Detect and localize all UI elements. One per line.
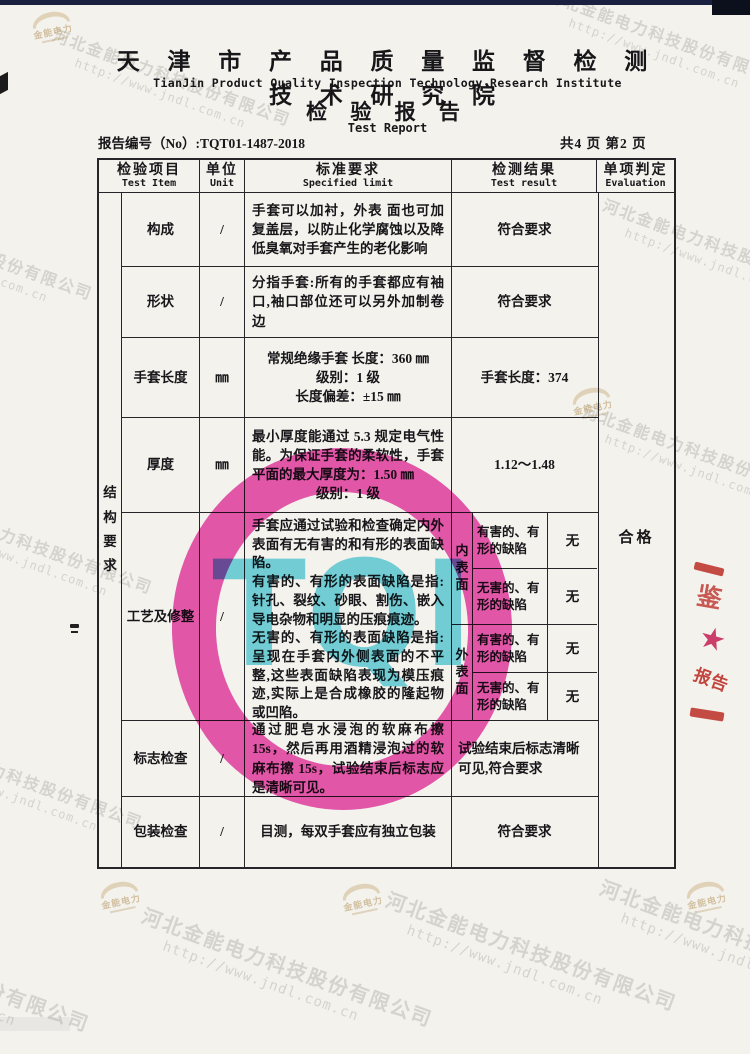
tqi-stamp-letters: TQI [207, 542, 480, 688]
group-label: 结构要求 [103, 481, 118, 578]
report-number: 报告编号（No）:TQT01-1487-2018 [98, 132, 305, 152]
result-cell: 符合要求 [452, 267, 597, 337]
item-cell: 标志检查 [122, 721, 200, 796]
result-cell: 符合要求 [452, 193, 597, 266]
spec-line: 长度偏差：±15 ㎜ [252, 387, 444, 406]
header-evaluation-en: Evaluation [605, 178, 665, 189]
spec-text: 分指手套:所有的手套都应有袖口,袖口部位还可以另外加制卷边 [252, 273, 444, 330]
item-cell: 构成 [122, 193, 200, 266]
group-column: 结构要求 [99, 193, 122, 867]
defect-value: 无 [548, 625, 597, 672]
spec-text: 手套可以加衬，外表 面也可加复盖层，以防止化学腐蚀以及降低臭氧对手套产生的老化影… [252, 201, 444, 258]
spec-cell: 手套可以加衬，外表 面也可加复盖层，以防止化学腐蚀以及降低臭氧对手套产生的老化影… [245, 193, 452, 266]
edge-seal-bar [693, 561, 724, 576]
header-test-item-en: Test Item [122, 178, 176, 189]
header-unit-en: Unit [210, 178, 234, 189]
header-test-result-cn: 检测结果 [492, 163, 556, 178]
evaluation-column: 合格 [599, 193, 674, 867]
item-cell: 包装检查 [122, 797, 200, 867]
watermark: 河北金能电力科技股份有限公司http://www.jndl.com.cn [0, 905, 94, 1054]
jinneng-logo: 金能电力 [337, 880, 386, 918]
header-test-result-en: Test result [491, 178, 557, 189]
header-unit-cn: 单位 [206, 163, 238, 178]
defect-value: 无 [548, 513, 597, 568]
spec-cell: 分指手套:所有的手套都应有袖口,袖口部位还可以另外加制卷边 [245, 267, 452, 337]
spec-text: 目测，每双手套应有独立包装 [252, 822, 444, 841]
spec-cell: 常规绝缘手套 长度：360 ㎜ 级别：1 级 长度偏差：±15 ㎜ [245, 338, 452, 417]
edge-seal-text: 报告 [691, 661, 733, 697]
item-cell: 形状 [122, 267, 200, 337]
header-evaluation-cn: 单项判定 [604, 163, 668, 178]
result-cell: 符合要求 [452, 797, 597, 867]
table-row: 形状 / 分指手套:所有的手套都应有袖口,袖口部位还可以另外加制卷边 符合要求 [122, 267, 598, 338]
edge-seal-character: 鉴 [694, 576, 725, 616]
institute-name-en: TianJin Product Quality Inspection Techn… [95, 76, 680, 90]
evaluation-value: 合格 [599, 526, 674, 547]
item-cell: 厚度 [122, 418, 200, 512]
unit-cell: / [200, 193, 245, 266]
unit-cell: / [200, 797, 245, 867]
jinneng-logo: 金能电力 [681, 878, 730, 916]
unit-cell: ㎜ [200, 338, 245, 417]
header-specified-limit-en: Specified limit [303, 178, 393, 189]
scan-speck-artifact [70, 624, 79, 628]
spec-line: 级别：1 级 [252, 368, 444, 387]
edge-seal-bar [690, 707, 725, 721]
defect-value: 无 [548, 673, 597, 720]
header-specified-limit-cn: 标准要求 [316, 163, 380, 178]
header-test-item: 检验项目 Test Item [99, 160, 200, 192]
header-test-item-cn: 检验项目 [117, 163, 181, 178]
scan-corner-mark [712, 0, 750, 15]
item-cell: 手套长度 [122, 338, 200, 417]
defect-value: 无 [548, 569, 597, 624]
page-info: 共4 页 第2 页 [560, 132, 647, 152]
table-header-row: 检验项目 Test Item 单位 Unit 标准要求 Specified li… [99, 160, 674, 193]
star-icon: ★ [695, 619, 730, 660]
scan-left-artifact [0, 72, 8, 94]
header-specified-limit: 标准要求 Specified limit [245, 160, 452, 192]
result-cell: 手套长度：374 [452, 338, 597, 417]
header-evaluation: 单项判定 Evaluation [597, 160, 674, 192]
scan-top-edge [0, 0, 750, 5]
result-cell: 1.12～1.48 [452, 418, 597, 512]
table-row: 手套长度 ㎜ 常规绝缘手套 长度：360 ㎜ 级别：1 级 长度偏差：±15 ㎜… [122, 338, 598, 418]
table-row: 构成 / 手套可以加衬，外表 面也可加复盖层，以防止化学腐蚀以及降低臭氧对手套产… [122, 193, 598, 267]
unit-cell: / [200, 267, 245, 337]
header-unit: 单位 Unit [200, 160, 245, 192]
header-test-result: 检测结果 Test result [452, 160, 597, 192]
spec-line: 常规绝缘手套 长度：360 ㎜ [252, 349, 444, 368]
jinneng-logo: 金能电力 [95, 878, 144, 916]
watermark: 河北金能电力科技股份有限公司http://www.jndl.com.cn [0, 196, 97, 319]
